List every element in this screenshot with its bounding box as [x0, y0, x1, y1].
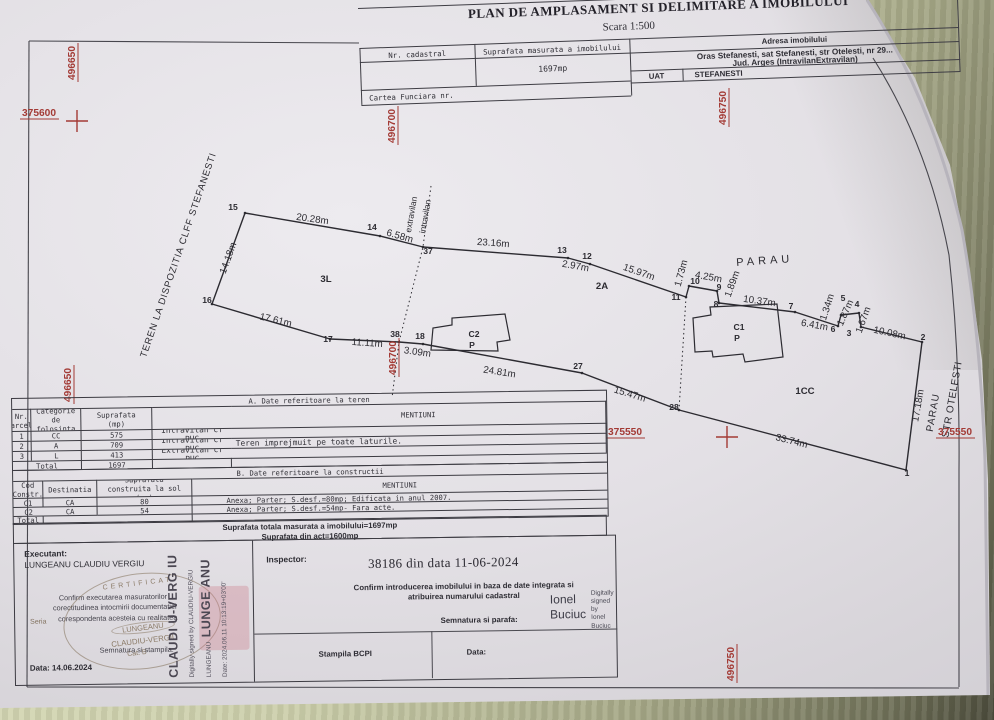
vertex-label: 8 — [714, 299, 719, 309]
grid-coordinate-text: 496750 — [718, 91, 729, 125]
grid-coordinate-text: 496650 — [67, 46, 78, 80]
grid-coordinate-text: 375550 — [938, 427, 972, 438]
dimension-label: 10.08m — [872, 325, 906, 343]
vertex-label: 15 — [228, 202, 238, 212]
map-text-label: extravilan — [403, 195, 419, 233]
semnatura-parafa-label: Semnatura si parafa: — [404, 614, 554, 625]
vertex-label: 6 — [831, 324, 836, 334]
cell: 2 — [13, 441, 32, 451]
dimension-label: 1.34m — [818, 293, 837, 322]
vertex-label: 37 — [423, 246, 433, 256]
registration-number: 38186 din data 11-06-2024 — [313, 553, 573, 573]
grid-coordinate-text: 496700 — [388, 341, 399, 375]
dimension-label: 33.74m — [774, 432, 808, 451]
building-label: C2 — [469, 329, 480, 339]
dimension-label: 17.61m — [258, 312, 292, 330]
inspector-date-label: Data: — [467, 647, 487, 656]
vertex-label: 38 — [390, 329, 400, 339]
map-text-label: TEREN LA DISPOZITIA CLFF STEFANESTI — [138, 151, 219, 359]
boundary-vertex-dot — [244, 212, 247, 215]
vertex-label: 14 — [367, 222, 377, 232]
vertex-label: 28 — [669, 402, 679, 412]
boundary-vertex-dot — [581, 372, 584, 375]
inspector-signature-name: Ionel Buciuc — [550, 592, 586, 623]
vertex-label: 10 — [690, 276, 700, 286]
cell: C1 — [13, 498, 43, 507]
table-teren: A. Date referitoare la teren Nr. parcela… — [11, 390, 608, 471]
boundary-vertex-dot — [379, 235, 382, 238]
dimension-label: 1.67m — [854, 305, 874, 334]
grid-cross — [66, 110, 88, 132]
parcel-area-label: 2A — [596, 281, 608, 292]
digital-signature-executant: CLAUDI U-VERG IU Digitally signed by CLA… — [164, 547, 262, 678]
col-header: Suprafata construita la sol (mp) — [97, 478, 192, 496]
cell: 1 — [12, 431, 31, 441]
dimension-label: 11.11m — [351, 337, 383, 350]
vertex-label: 27 — [573, 361, 583, 371]
vertex-label: 17 — [323, 334, 333, 344]
grid-coordinate-label: 496700 — [387, 106, 398, 145]
paper-fold-edge — [867, 0, 988, 695]
boundary-vertex-dot — [794, 311, 797, 314]
grid-line — [431, 631, 433, 678]
grid-line — [254, 629, 617, 635]
stampila-bcpi-label: Stampila BCPI — [319, 649, 372, 659]
dimension-label: 14.18m — [218, 241, 240, 275]
suprafata-value: 1697mp — [475, 62, 630, 77]
vertex-label: 13 — [557, 245, 567, 255]
grid-coordinate-text: 375550 — [608, 427, 642, 438]
seria-label: Seria — [30, 619, 46, 626]
dimension-label: 1.73m — [673, 259, 691, 288]
executant-date: Data: 14.06.2024 — [30, 663, 92, 673]
grid-coordinate-label: 375550 — [936, 427, 975, 438]
executant-name: LUNGEANU CLAUDIU VERGIU — [24, 558, 144, 570]
dimension-label: 15.47m — [612, 385, 646, 405]
vertex-label: 4 — [855, 299, 860, 309]
building-label: P — [469, 340, 475, 350]
grid-coordinate-label: 496650 — [67, 43, 78, 82]
dsig-name-part2: LUNGE ANU — [198, 559, 213, 638]
dimension-label: 23.16m — [476, 237, 509, 250]
col-header — [152, 406, 231, 429]
inspector-label: Inspector: — [266, 554, 307, 565]
dimension-label: 2.97m — [561, 259, 590, 275]
parcel-area-label: 3L — [320, 274, 331, 285]
dsig-note-part2: Date: 2024.06.11 10:13:19+03'00' — [221, 581, 229, 677]
col-header: Destinatia — [43, 480, 97, 498]
grid-coordinate-text: 496750 — [726, 647, 737, 681]
boundary-vertex-dot — [422, 343, 425, 346]
dimension-label: 20.28m — [295, 212, 329, 227]
page-border-top — [29, 41, 359, 43]
vertex-label: 2 — [921, 332, 926, 342]
zone-limit-dotted-line — [679, 297, 686, 410]
vertex-label: 9 — [717, 282, 722, 292]
uat-label: UAT — [630, 71, 682, 83]
vertex-label: 5 — [841, 293, 846, 303]
dimension-label: 24.81m — [482, 365, 516, 381]
executant-label: Executant: — [24, 548, 67, 559]
grid-coordinate-text: 375600 — [22, 108, 56, 119]
vertex-label: 11 — [671, 292, 680, 302]
executant-box: Executant: LUNGEANU CLAUDIU VERGIU Confi… — [14, 541, 255, 685]
col-header: Suprafata (mp) — [81, 407, 152, 430]
building-label: C1 — [734, 322, 745, 332]
grid-coordinate-label: 375600 — [20, 108, 59, 119]
col-header: Categorie de folosinta — [31, 408, 81, 431]
grid-coordinate-label: 496700 — [388, 338, 399, 377]
grid-coordinate-text: 496700 — [387, 109, 398, 143]
cell: CC — [31, 430, 81, 441]
map-text-label: intravilan — [417, 199, 433, 235]
grid-cross — [716, 426, 738, 448]
dimension-label: 17.18m — [910, 389, 927, 423]
vertex-label: 12 — [582, 251, 592, 261]
signature-boxes: Executant: LUNGEANU CLAUDIU VERGIU Confi… — [13, 535, 618, 686]
building-label: P — [734, 333, 740, 343]
dsig-name-part1: CLAUDI U-VERG IU — [165, 554, 181, 677]
vertex-label: 3 — [847, 328, 852, 338]
col-header: Nr. parcela — [12, 409, 31, 431]
inspector-signature-note: Digitally signed by Ionel Buciuc — [591, 590, 617, 631]
vertex-label: 16 — [202, 295, 212, 305]
data-tables-block: A. Date referitoare la teren Nr. parcela… — [11, 389, 616, 687]
dimension-label: 3.09m — [403, 345, 432, 360]
page-border-right — [873, 58, 959, 687]
inspector-box: Inspector: 38186 din data 11-06-2024 Con… — [253, 536, 617, 682]
parcel-area-label: 1CC — [795, 386, 814, 397]
vertex-label: 1 — [905, 468, 910, 478]
grid-coordinate-label: 496750 — [726, 644, 737, 683]
dimension-label: 15.97m — [622, 262, 656, 283]
vertex-label: 18 — [415, 331, 425, 341]
photo-of-cadastral-plan: 20.28m6.58m23.16m2.97m15.97m1.73m4.25m1.… — [0, 0, 994, 720]
dimension-label: 1.89m — [723, 269, 743, 298]
vertex-label: 7 — [789, 301, 794, 311]
semnatura-stampila-label: Semnatura si stampila. — [99, 645, 173, 655]
col-header: Cod Constr. — [13, 481, 43, 498]
map-text-label: PARAU — [736, 253, 794, 269]
cell: C2 — [14, 507, 44, 516]
page-border-bottom — [27, 687, 959, 688]
cell: 3 — [13, 451, 32, 461]
